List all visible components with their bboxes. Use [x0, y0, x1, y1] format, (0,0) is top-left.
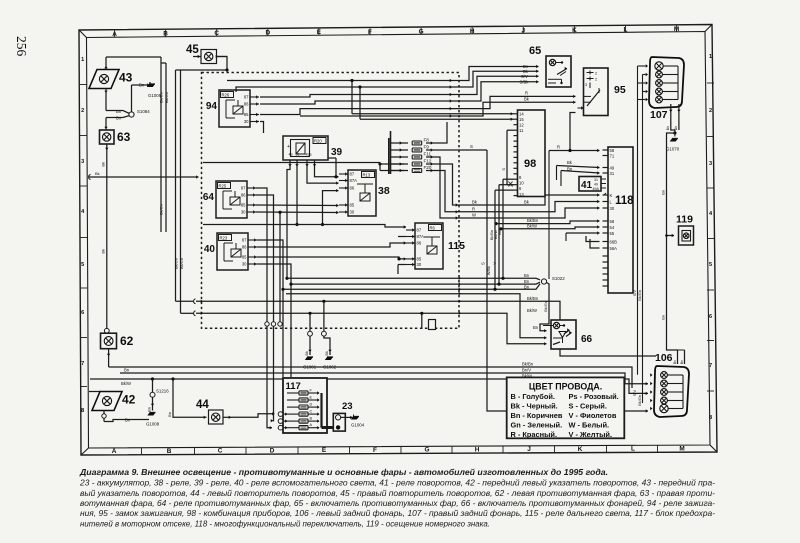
svg-text:10: 10	[519, 181, 524, 186]
svg-text:D: D	[310, 403, 313, 407]
svg-text:87: 87	[244, 95, 249, 100]
svg-text:106: 106	[655, 352, 673, 364]
svg-text:Bk: Bk	[674, 126, 678, 130]
svg-text:49: 49	[594, 183, 598, 187]
svg-text:R23: R23	[220, 236, 228, 241]
svg-text:ния, 95 - замок зажигания, 98: ния, 95 - замок зажигания, 98 - комбинац…	[80, 508, 715, 518]
svg-text:ЦВЕТ ПРОВОДА.: ЦВЕТ ПРОВОДА.	[529, 382, 602, 392]
svg-text:S: S	[470, 144, 473, 149]
svg-text:86: 86	[241, 193, 246, 198]
svg-text:Bk - Черный.: Bk - Черный.	[511, 402, 558, 411]
svg-text:44: 44	[196, 399, 209, 411]
svg-text:8: 8	[81, 408, 84, 414]
svg-text:86: 86	[417, 241, 422, 246]
svg-text:86: 86	[242, 245, 247, 250]
svg-text:13: 13	[519, 192, 524, 197]
svg-text:G1004: G1004	[351, 423, 365, 428]
svg-text:Gn - Зеленый.: Gn - Зеленый.	[511, 421, 563, 430]
svg-text:K: K	[578, 446, 583, 453]
svg-text:Bk/Gn: Bk/Gn	[638, 395, 642, 406]
svg-text:87: 87	[241, 186, 246, 191]
svg-text:49: 49	[289, 153, 293, 157]
svg-text:8: 8	[709, 415, 712, 421]
svg-text:нителей в моторном отсеке, 118: нителей в моторном отсеке, 118 - многофу…	[80, 518, 490, 528]
svg-text:R13: R13	[363, 173, 371, 178]
svg-text:71: 71	[610, 154, 615, 159]
svg-text:49a: 49a	[306, 153, 312, 157]
svg-text:87: 87	[242, 238, 247, 243]
svg-text:94: 94	[206, 101, 218, 112]
svg-text:S1084: S1084	[137, 109, 150, 114]
svg-text:Bn: Bn	[673, 360, 677, 364]
svg-text:Bn - Коричнев: Bn - Коричнев	[511, 411, 563, 420]
svg-text:R20: R20	[314, 139, 322, 144]
svg-text:Bk/W: Bk/W	[121, 381, 131, 386]
svg-text:Bk/W: Bk/W	[527, 308, 537, 313]
svg-text:6: 6	[709, 314, 712, 320]
svg-text:Bn: Bn	[567, 167, 573, 172]
svg-text:K: K	[610, 193, 613, 198]
svg-text:D: D	[270, 447, 275, 454]
svg-text:85: 85	[242, 255, 247, 260]
svg-text:58: 58	[610, 148, 615, 153]
svg-text:G1009: G1009	[148, 93, 162, 98]
svg-text:Bk: Bk	[666, 126, 670, 130]
svg-text:S: S	[501, 168, 506, 171]
svg-text:2: 2	[595, 78, 597, 82]
svg-text:65: 65	[529, 45, 541, 57]
svg-text:Bk/Gn: Bk/Gn	[179, 258, 184, 269]
svg-text:Bk/W: Bk/W	[494, 230, 498, 239]
svg-text:Bn: Bn	[167, 412, 172, 417]
svg-text:J: J	[527, 446, 531, 453]
svg-text:Bk/Bn: Bk/Bn	[490, 230, 494, 240]
svg-text:43: 43	[119, 71, 133, 85]
svg-text:3: 3	[585, 83, 587, 87]
svg-text:256: 256	[14, 36, 29, 57]
svg-text:49A: 49A	[593, 187, 600, 191]
svg-text:G1008: G1008	[146, 422, 160, 427]
svg-text:Bn: Bn	[662, 315, 666, 320]
svg-text:A: A	[112, 448, 117, 455]
svg-text:Bn: Bn	[533, 325, 539, 330]
svg-text:R: R	[472, 206, 475, 211]
svg-text:M: M	[679, 445, 684, 452]
svg-text:41: 41	[581, 180, 593, 191]
svg-text:58: 58	[610, 219, 615, 224]
svg-text:Ps - Розовый.: Ps - Розовый.	[569, 392, 619, 401]
svg-text:2: 2	[709, 108, 712, 114]
svg-text:Bn: Bn	[147, 407, 152, 412]
svg-text:66: 66	[581, 334, 593, 345]
svg-text:56A: 56A	[610, 246, 618, 251]
svg-text:S/V: S/V	[633, 390, 637, 397]
svg-text:R - Красный.: R - Красный.	[511, 430, 558, 439]
svg-text:L: L	[631, 446, 635, 453]
svg-text:Bn: Bn	[524, 285, 530, 290]
svg-text:45: 45	[186, 44, 199, 56]
svg-text:Bn: Bn	[524, 279, 530, 284]
svg-text:49: 49	[610, 166, 615, 171]
svg-text:Bn: Bn	[524, 273, 530, 278]
svg-text:F: F	[373, 447, 377, 454]
svg-text:54: 54	[610, 225, 615, 230]
svg-text:39: 39	[331, 147, 343, 158]
svg-text:7: 7	[81, 361, 84, 367]
svg-text:30: 30	[417, 262, 422, 267]
svg-text:W/Bk: W/Bk	[487, 266, 491, 275]
svg-text:23: 23	[342, 401, 353, 412]
svg-text:1: 1	[709, 54, 712, 60]
svg-text:W - Белый.: W - Белый.	[569, 421, 610, 430]
svg-text:Bn: Bn	[680, 360, 684, 364]
svg-text:85: 85	[350, 203, 355, 208]
svg-text:V - Фиолетов: V - Фиолетов	[569, 411, 617, 420]
svg-text:Bk/Gn: Bk/Gn	[159, 204, 164, 215]
svg-text:95: 95	[614, 84, 626, 96]
svg-text:Bk/Bn: Bk/Bn	[527, 296, 539, 301]
svg-text:Bk/Bn: Bk/Bn	[527, 218, 539, 223]
svg-text:вотуманная фара, 64 - реле про: вотуманная фара, 64 - реле противотуманн…	[80, 498, 715, 508]
svg-text:Bk/W: Bk/W	[527, 223, 537, 228]
svg-text:115: 115	[448, 240, 465, 252]
svg-text:F8: F8	[424, 138, 430, 143]
svg-text:2: 2	[81, 108, 84, 114]
svg-text:S/V: S/V	[521, 74, 528, 79]
svg-text:86: 86	[350, 186, 355, 191]
svg-text:Bk/Bn: Bk/Bn	[522, 362, 534, 367]
svg-text:S1022: S1022	[552, 276, 565, 281]
svg-text:11: 11	[519, 128, 524, 133]
svg-text:14: 14	[519, 112, 524, 117]
svg-text:87A: 87A	[417, 234, 425, 239]
svg-text:Bk: Bk	[305, 351, 309, 356]
svg-text:Bk: Bk	[325, 351, 329, 356]
svg-text:98: 98	[524, 158, 536, 170]
svg-text:12: 12	[519, 123, 524, 128]
svg-text:3: 3	[81, 159, 84, 165]
svg-text:107: 107	[650, 109, 668, 121]
svg-text:38: 38	[378, 185, 390, 197]
svg-text:R25: R25	[219, 184, 227, 189]
svg-text:87: 87	[350, 172, 355, 177]
svg-text:S1216: S1216	[156, 389, 169, 394]
svg-text:S/V: S/V	[633, 290, 637, 297]
svg-text:1: 1	[81, 57, 84, 63]
svg-text:Диаграмма 9. Внешнее освещение: Диаграмма 9. Внешнее освещение - противо…	[79, 467, 608, 477]
svg-text:42: 42	[122, 393, 136, 407]
svg-text:Bn: Bn	[124, 368, 130, 373]
svg-text:6: 6	[81, 310, 84, 316]
svg-text:87: 87	[417, 228, 422, 233]
svg-text:F12: F12	[424, 159, 432, 164]
svg-text:R26: R26	[222, 93, 230, 98]
svg-text:5: 5	[81, 262, 84, 268]
svg-text:C: C	[310, 410, 313, 414]
svg-text:Bk/Gn: Bk/Gn	[638, 290, 642, 301]
svg-text:117: 117	[286, 381, 301, 392]
svg-text:2: 2	[595, 72, 597, 76]
svg-text:85: 85	[244, 112, 249, 117]
svg-text:вый указатель поворотов, 44 -: вый указатель поворотов, 44 - левый повт…	[80, 488, 715, 498]
svg-text:V - Желтый.: V - Желтый.	[569, 430, 613, 439]
svg-text:Bn: Bn	[498, 230, 502, 235]
svg-text:F20: F20	[424, 165, 432, 170]
svg-text:B: B	[167, 448, 172, 455]
svg-text:Bk/Gn: Bk/Gn	[164, 92, 169, 103]
svg-text:Bn/V: Bn/V	[522, 368, 531, 373]
svg-text:119: 119	[676, 214, 693, 226]
svg-text:Bn: Bn	[125, 418, 131, 423]
svg-text:63: 63	[117, 130, 131, 144]
svg-text:30: 30	[242, 262, 247, 267]
svg-text:Bk/Gn: Bk/Gn	[174, 258, 179, 269]
svg-text:B - Голубой.: B - Голубой.	[511, 392, 555, 401]
svg-text:E: E	[322, 447, 327, 454]
svg-text:W: W	[472, 213, 476, 218]
svg-text:85: 85	[241, 203, 246, 208]
svg-text:S - Серый.: S - Серый.	[569, 402, 607, 411]
svg-text:Bk: Bk	[101, 162, 106, 167]
svg-text:30: 30	[350, 210, 355, 215]
svg-text:G1062: G1062	[323, 365, 337, 370]
svg-text:S/Bk: S/Bk	[520, 79, 530, 84]
svg-text:40: 40	[204, 244, 216, 255]
svg-text:7: 7	[709, 363, 712, 369]
svg-text:87A: 87A	[350, 178, 358, 183]
svg-text:30: 30	[244, 119, 249, 124]
svg-text:R6: R6	[430, 226, 436, 231]
svg-text:31: 31	[610, 171, 615, 176]
svg-text:86: 86	[244, 102, 249, 107]
svg-text:Bn: Bn	[116, 109, 122, 114]
svg-text:S: S	[481, 262, 486, 265]
svg-text:Bk/Gn: Bk/Gn	[544, 301, 548, 312]
svg-text:G1070: G1070	[666, 147, 680, 152]
svg-text:R: R	[525, 91, 528, 96]
svg-text:F9: F9	[424, 145, 430, 150]
svg-text:R: R	[557, 145, 560, 150]
svg-text:F11: F11	[424, 152, 432, 157]
svg-text:15: 15	[519, 117, 524, 122]
svg-text:66B: 66B	[610, 240, 618, 245]
svg-text:31: 31	[594, 178, 598, 182]
svg-text:85: 85	[417, 257, 422, 262]
svg-text:H: H	[475, 446, 480, 453]
svg-text:G1001: G1001	[303, 365, 317, 370]
svg-text:55: 55	[610, 231, 615, 236]
svg-text:Bk: Bk	[101, 249, 106, 254]
svg-text:31: 31	[296, 153, 300, 157]
svg-text:G: G	[425, 447, 430, 454]
svg-text:+: +	[287, 144, 290, 150]
svg-text:30: 30	[241, 210, 246, 215]
svg-text:C: C	[218, 448, 223, 455]
svg-text:Bk: Bk	[95, 171, 100, 176]
svg-text:Bn: Bn	[662, 190, 666, 195]
svg-text:118: 118	[615, 195, 634, 207]
svg-text:62: 62	[120, 334, 134, 348]
svg-text:5: 5	[709, 262, 712, 268]
svg-text:23 - аккумулятор, 38 - реле, 3: 23 - аккумулятор, 38 - реле, 39 - реле, …	[79, 477, 715, 487]
svg-text:64: 64	[203, 192, 215, 203]
svg-text:3: 3	[709, 161, 712, 167]
